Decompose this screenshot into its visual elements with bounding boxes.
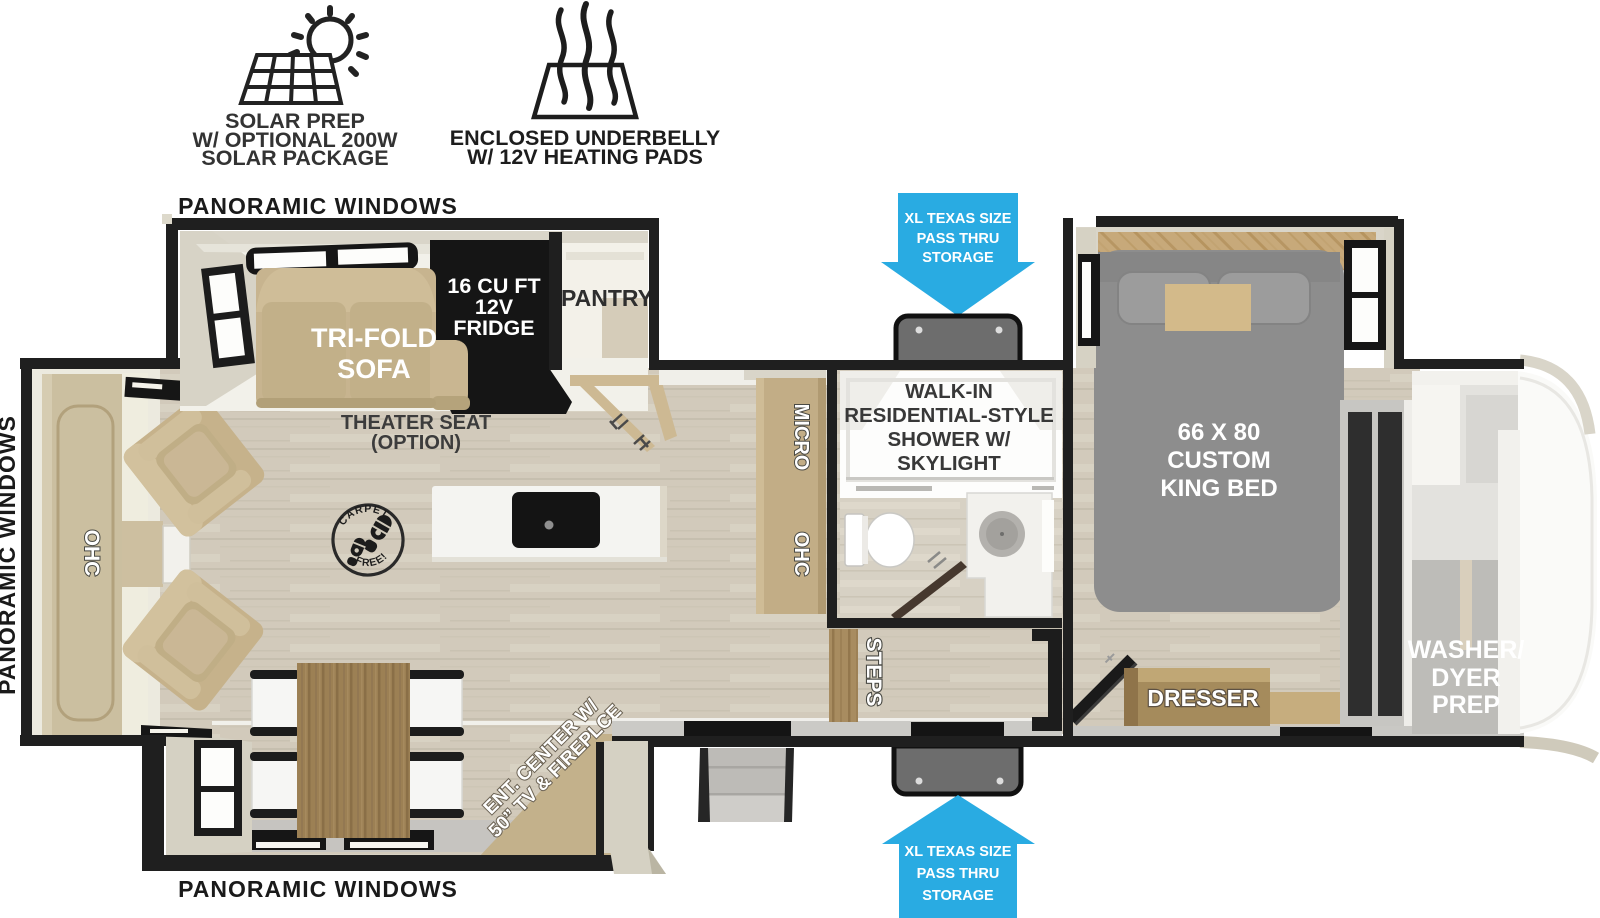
svg-text:PASS THRU: PASS THRU <box>917 866 1000 882</box>
svg-text:XL TEXAS SIZE: XL TEXAS SIZE <box>905 844 1012 860</box>
svg-text:SKYLIGHT: SKYLIGHT <box>897 452 1001 475</box>
svg-text:SHOWER W/: SHOWER W/ <box>888 428 1011 451</box>
svg-text:PASS THRU: PASS THRU <box>917 231 1000 247</box>
svg-text:SOLAR PACKAGE: SOLAR PACKAGE <box>201 146 388 170</box>
svg-text:(OPTION): (OPTION) <box>371 432 461 454</box>
svg-text:THEATER SEAT: THEATER SEAT <box>341 412 491 434</box>
svg-text:MICRO: MICRO <box>790 404 812 471</box>
svg-text:WASHER/: WASHER/ <box>1408 636 1525 664</box>
svg-text:PANORAMIC WINDOWS: PANORAMIC WINDOWS <box>178 876 458 902</box>
svg-text:DYER: DYER <box>1431 664 1500 692</box>
svg-text:STEPS: STEPS <box>862 638 885 707</box>
svg-text:66 X 80: 66 X 80 <box>1178 419 1261 446</box>
svg-text:DRESSER: DRESSER <box>1147 685 1259 711</box>
svg-text:W/ 12V HEATING PADS: W/ 12V HEATING PADS <box>467 145 703 169</box>
svg-text:CUSTOM: CUSTOM <box>1167 447 1271 474</box>
svg-text:FRIDGE: FRIDGE <box>453 316 534 340</box>
svg-text:TRI-FOLD: TRI-FOLD <box>311 323 437 353</box>
svg-text:KING BED: KING BED <box>1160 475 1277 502</box>
svg-text:WALK-IN: WALK-IN <box>905 380 993 403</box>
svg-text:OHC: OHC <box>80 530 103 577</box>
svg-text:RESIDENTIAL-STYLE: RESIDENTIAL-STYLE <box>844 404 1054 427</box>
svg-text:XL TEXAS SIZE: XL TEXAS SIZE <box>905 211 1012 227</box>
svg-text:STORAGE: STORAGE <box>922 888 994 904</box>
svg-text:PREP: PREP <box>1432 691 1500 719</box>
svg-text:PANTRY: PANTRY <box>561 285 653 311</box>
svg-text:SOFA: SOFA <box>337 354 411 384</box>
svg-text:PANORAMIC WINDOWS: PANORAMIC WINDOWS <box>0 415 20 695</box>
svg-text:OHC: OHC <box>790 532 812 576</box>
svg-text:PANORAMIC WINDOWS: PANORAMIC WINDOWS <box>178 193 458 219</box>
svg-text:STORAGE: STORAGE <box>922 250 994 266</box>
